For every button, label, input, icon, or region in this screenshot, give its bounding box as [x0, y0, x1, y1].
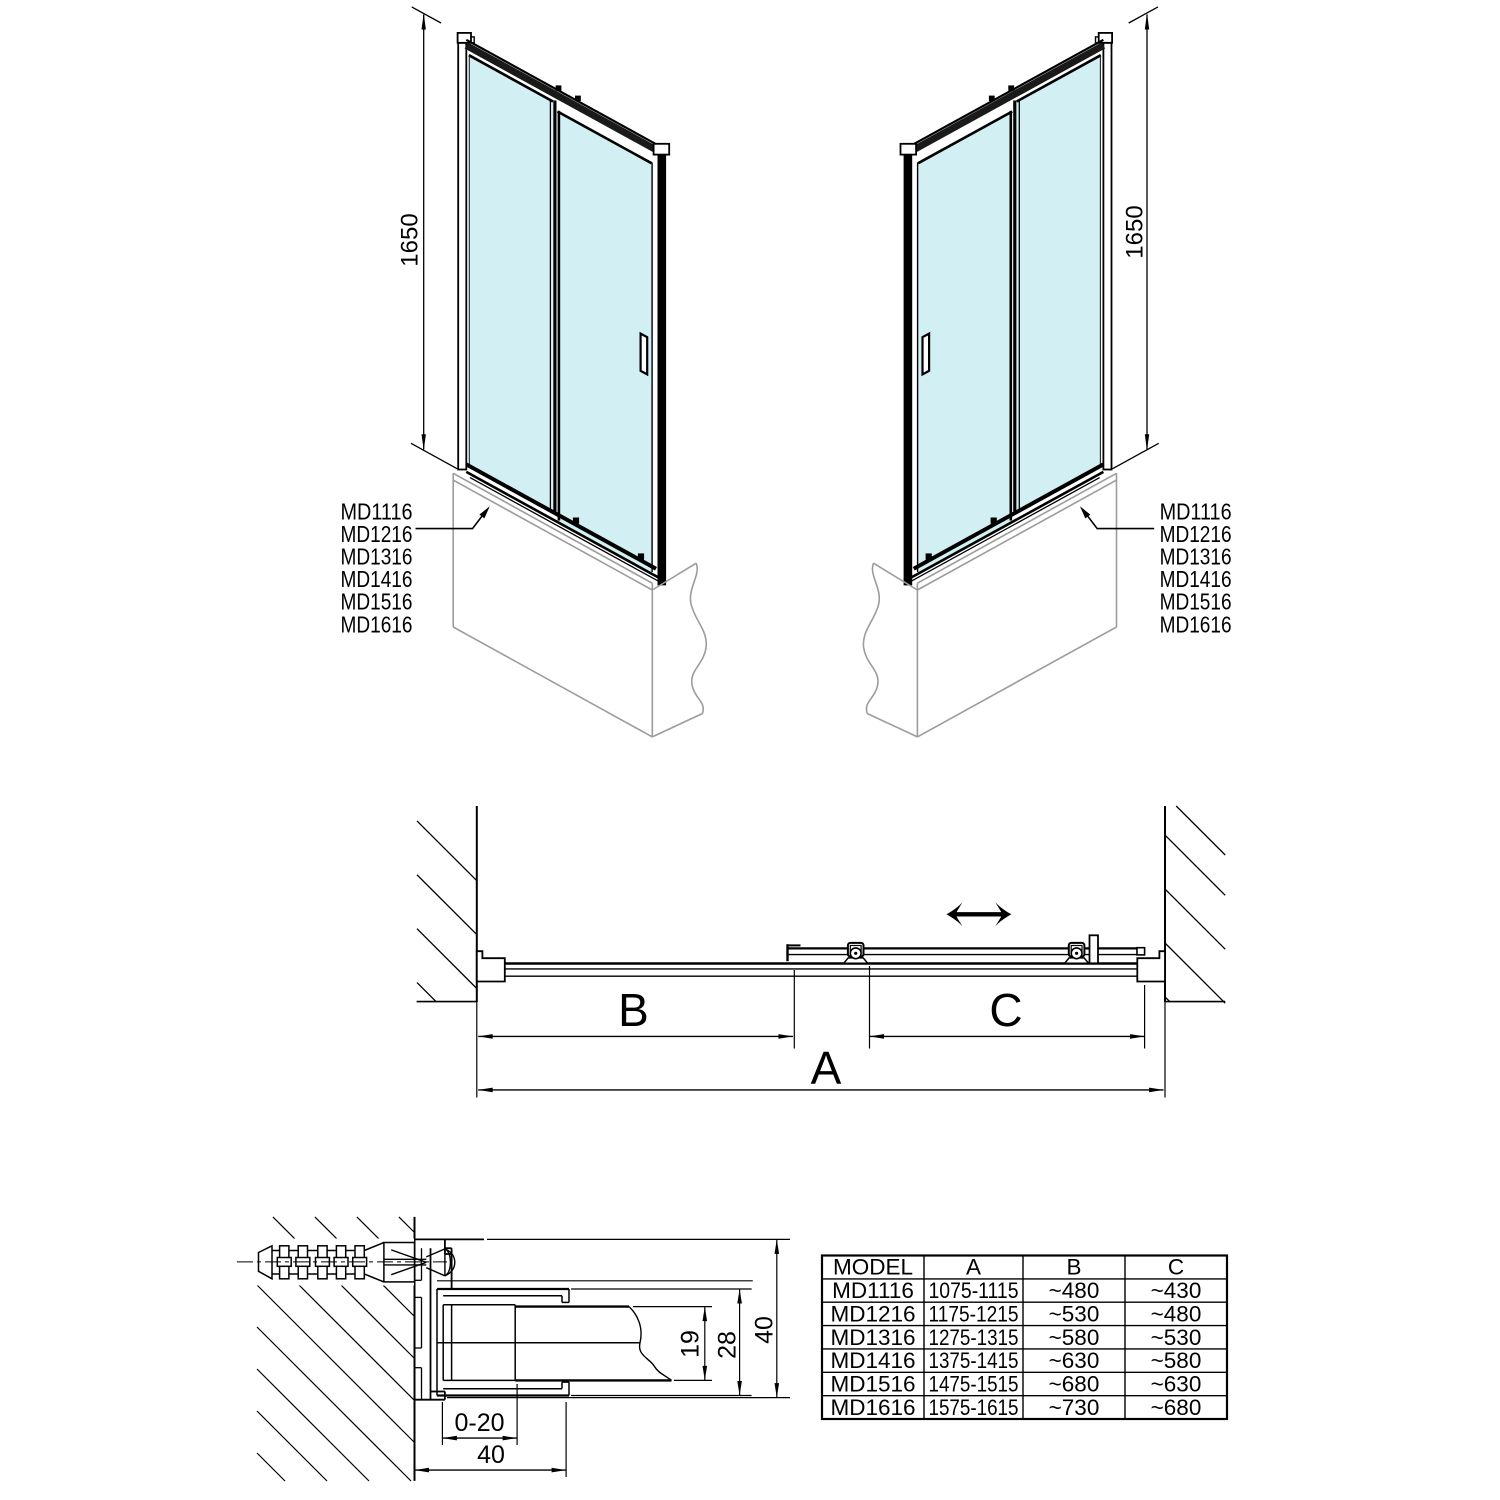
svg-text:MD1416: MD1416	[830, 1348, 915, 1373]
svg-text:~730: ~730	[1049, 1395, 1100, 1420]
svg-text:MD1516: MD1516	[830, 1372, 915, 1397]
svg-text:1575-1615: 1575-1615	[929, 1395, 1019, 1420]
svg-text:~530: ~530	[1049, 1301, 1100, 1326]
svg-text:19: 19	[677, 1330, 705, 1358]
svg-text:MD1216: MD1216	[830, 1301, 915, 1326]
svg-text:1650: 1650	[396, 213, 423, 266]
svg-text:1375-1415: 1375-1415	[929, 1348, 1019, 1373]
svg-text:~480: ~480	[1049, 1278, 1100, 1303]
svg-text:1275-1315: 1275-1315	[929, 1325, 1019, 1350]
svg-text:MD1616: MD1616	[830, 1395, 915, 1420]
svg-text:~580: ~580	[1151, 1348, 1202, 1373]
svg-text:B: B	[618, 984, 649, 1036]
svg-text:MD1616: MD1616	[341, 611, 413, 637]
svg-text:~430: ~430	[1151, 1278, 1202, 1303]
svg-text:~630: ~630	[1049, 1348, 1100, 1373]
svg-text:~680: ~680	[1049, 1372, 1100, 1397]
svg-text:MD1316: MD1316	[830, 1325, 915, 1350]
svg-text:~630: ~630	[1151, 1372, 1202, 1397]
svg-text:0-20: 0-20	[454, 1409, 504, 1437]
svg-text:A: A	[811, 1042, 842, 1094]
svg-text:1475-1515: 1475-1515	[929, 1372, 1019, 1397]
svg-text:~580: ~580	[1049, 1325, 1100, 1350]
svg-text:MD1116: MD1116	[832, 1278, 914, 1303]
svg-text:1650: 1650	[1121, 205, 1148, 258]
svg-text:40: 40	[751, 1316, 779, 1344]
svg-text:MD1616: MD1616	[1160, 611, 1232, 637]
svg-text:C: C	[989, 984, 1022, 1036]
svg-text:40: 40	[477, 1441, 505, 1469]
svg-text:28: 28	[714, 1331, 742, 1359]
svg-text:1075-1115: 1075-1115	[929, 1278, 1019, 1303]
svg-text:B: B	[1066, 1255, 1081, 1280]
svg-text:MODEL: MODEL	[833, 1255, 913, 1280]
svg-text:~680: ~680	[1151, 1395, 1202, 1420]
svg-text:~480: ~480	[1151, 1301, 1202, 1326]
svg-text:A: A	[966, 1255, 981, 1280]
svg-text:~530: ~530	[1151, 1325, 1202, 1350]
svg-text:1175-1215: 1175-1215	[929, 1301, 1019, 1326]
svg-text:C: C	[1168, 1255, 1184, 1280]
